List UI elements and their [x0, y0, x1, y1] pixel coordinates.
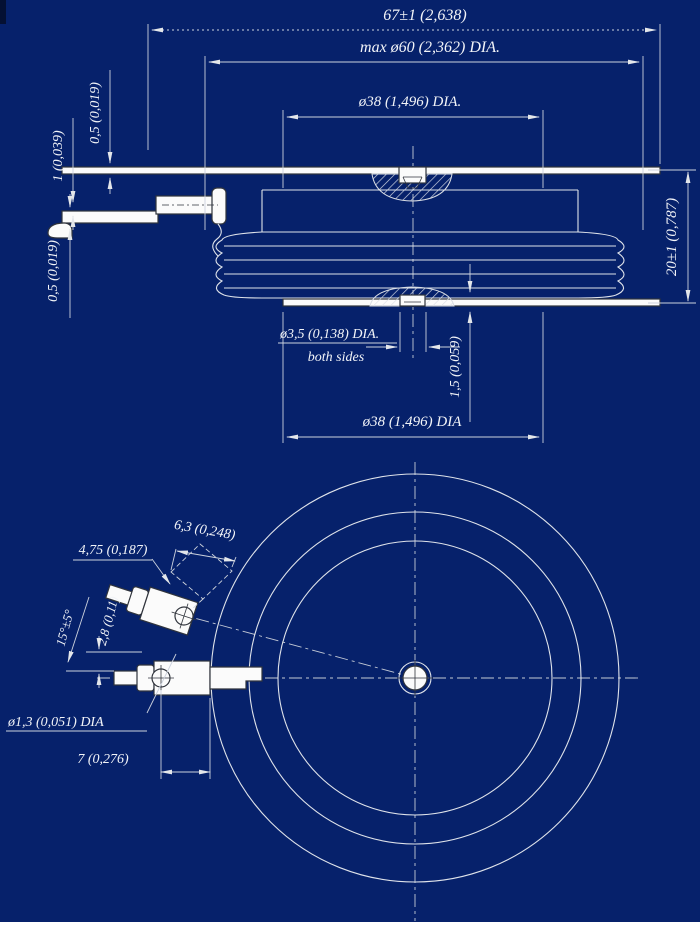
blueprint-page: 4,75 (0,187) 6,3 (0,248) 15°±5° 2,8 (0,1… — [0, 0, 700, 940]
bottom-gate-cup — [400, 295, 425, 306]
lug-tube — [114, 671, 140, 685]
page-bottom-strip — [0, 922, 700, 940]
dim-bottom-lead-thickness-label: 0,5 (0,019) — [46, 240, 61, 302]
dim-max-dia-label: max ø60 (2,362) DIA. — [360, 39, 500, 56]
bottom-lead — [283, 299, 660, 306]
dim-center-hole-dia-label: ø3,5 (0,138) DIA. — [279, 327, 379, 342]
dim-height-label: 20±1 (0,787) — [664, 198, 680, 276]
dim-terminal-width-label: 4,75 (0,187) — [79, 543, 148, 558]
crimp-end-cap — [212, 188, 226, 224]
dim-total-width-label: 67±1 (2,638) — [383, 7, 466, 24]
dim-pole-dia-top-label: ø38 (1,496) DIA. — [358, 94, 461, 110]
technical-drawing: 4,75 (0,187) 6,3 (0,248) 15°±5° 2,8 (0,1… — [0, 0, 700, 940]
dim-top-lead-thickness-label: 0,5 (0,019) — [88, 82, 103, 144]
scan-corner-mark — [0, 0, 6, 24]
dim-pole-dia-bottom-label: ø38 (1,496) DIA — [362, 414, 463, 430]
center-hole-note-label: both sides — [308, 350, 365, 365]
dim-hole-offset-label: 7 (0,276) — [77, 752, 129, 767]
dim-lead-spacing-label: 1 (0,039) — [51, 130, 66, 182]
top-lead — [62, 167, 660, 174]
dim-recess-depth-label: 1,5 (0,059) — [448, 336, 463, 398]
dim-terminal-hole-dia-label: ø1,3 (0,051) DIA — [7, 715, 104, 730]
top-gate-cup — [399, 167, 426, 183]
gate-flat-lead — [62, 211, 158, 223]
